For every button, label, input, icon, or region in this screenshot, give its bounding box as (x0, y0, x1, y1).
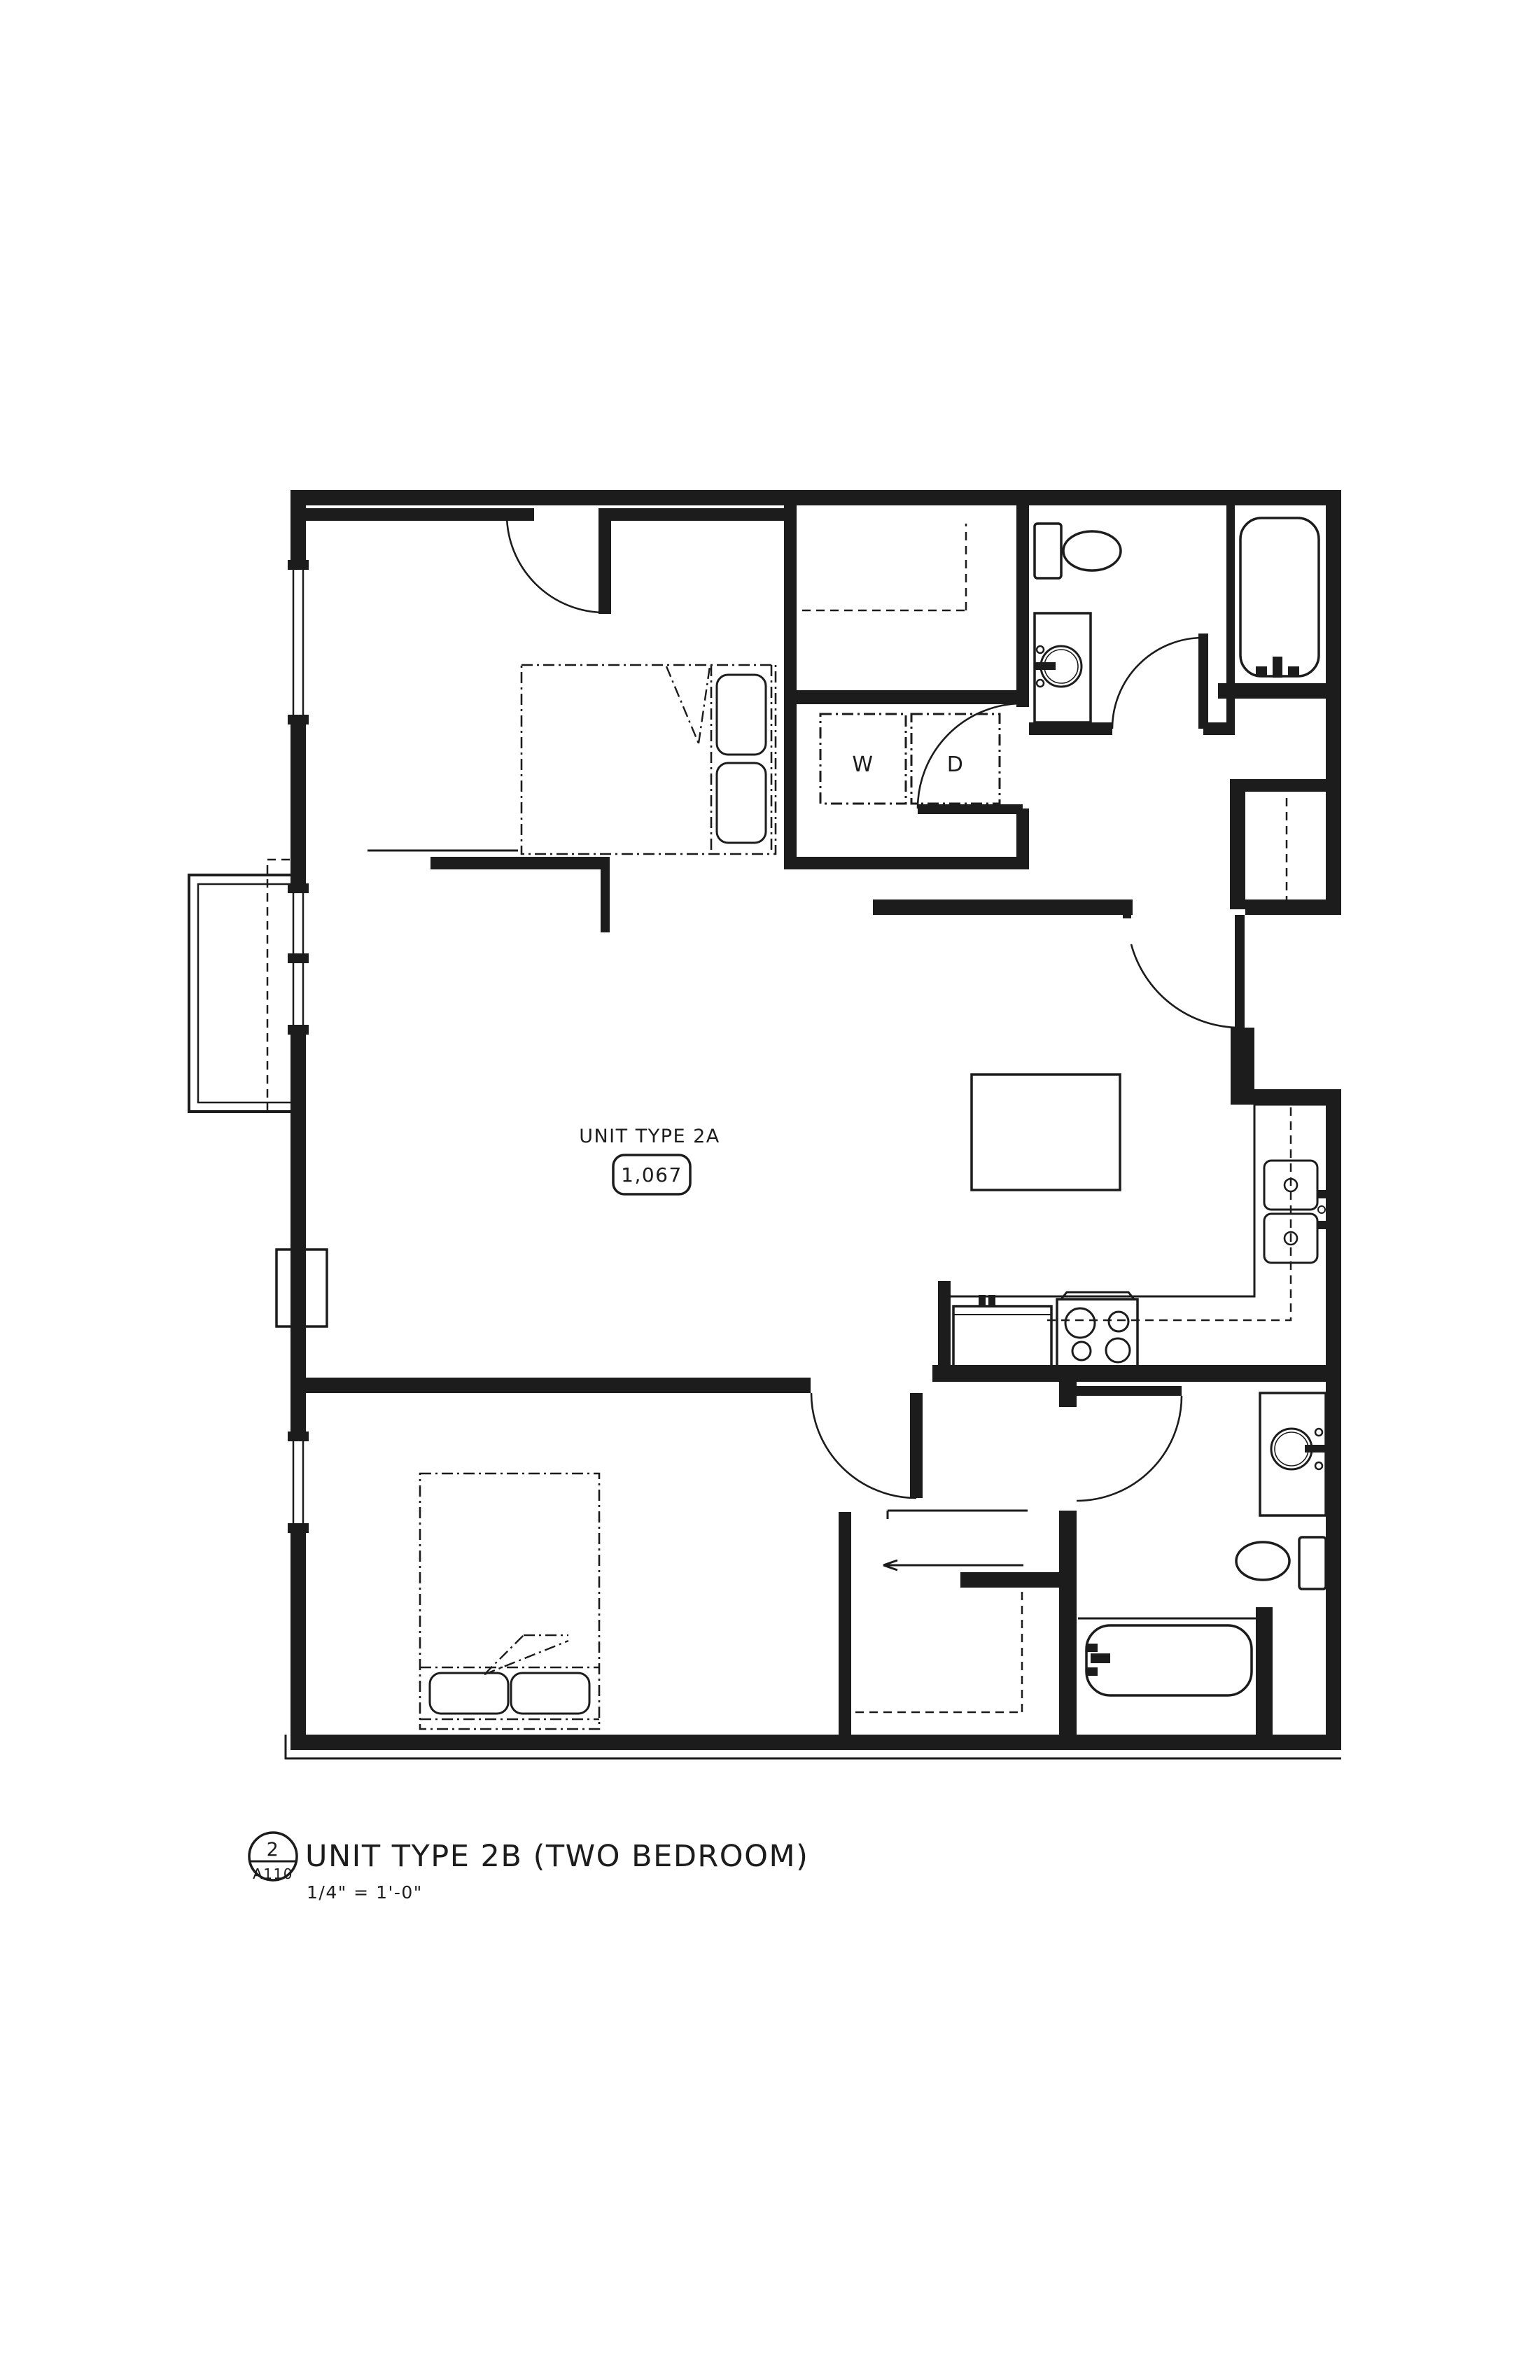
title-block: 2 A110 UNIT TYPE 2B (TWO BEDROOM) 1/4" =… (249, 1833, 808, 1903)
tub-spout (1273, 657, 1282, 678)
bedroom1-door (507, 508, 611, 614)
interior-walls (306, 503, 1341, 1742)
faucet (1035, 662, 1056, 670)
kitchen-island (972, 1074, 1120, 1190)
unit-entry-door (1131, 915, 1245, 1028)
sheet-number: A110 (253, 1865, 293, 1882)
pillow (430, 1673, 508, 1714)
washer-label: W (852, 752, 874, 777)
kitchen-sink (1264, 1161, 1326, 1263)
faucet (1305, 1445, 1326, 1452)
floor-plan-drawing: W D (0, 0, 1540, 2380)
laundry-closet: W D (820, 714, 1000, 804)
fridge-handle (979, 1295, 986, 1306)
unit-area-value: 1,067 (621, 1163, 682, 1186)
burner (1065, 1308, 1095, 1338)
drawing-scale: 1/4" = 1'-0" (307, 1882, 423, 1903)
blanket-fold (666, 666, 710, 743)
vanity-sink (1260, 1393, 1326, 1515)
bathtub (1078, 1618, 1256, 1695)
burner (1072, 1342, 1091, 1360)
doors (507, 508, 1245, 1570)
bedroom1-window (288, 560, 309, 724)
burner (1109, 1312, 1128, 1331)
bathtub (1240, 518, 1319, 678)
counter-edge (951, 1105, 1254, 1296)
refrigerator (953, 1295, 1051, 1372)
pillow (717, 675, 766, 755)
fridge-handle (988, 1295, 995, 1306)
living-room-windows (288, 883, 309, 1035)
exterior-walls (286, 490, 1341, 1758)
unit-label-group: UNIT TYPE 2A 1,067 (579, 1126, 720, 1194)
pillow (717, 763, 766, 843)
dryer-label: D (947, 752, 965, 777)
drawing-title: UNIT TYPE 2B (TWO BEDROOM) (305, 1839, 808, 1874)
bedroom2-window (288, 1431, 309, 1533)
bedroom2-bed (420, 1473, 599, 1729)
bathroom2-fixtures (1078, 1393, 1326, 1695)
tub-valve (1086, 1644, 1098, 1652)
tub-valve (1086, 1667, 1098, 1676)
toilet (1236, 1537, 1326, 1589)
stove (1057, 1292, 1137, 1366)
tub-spout (1091, 1653, 1110, 1663)
balcony (189, 860, 297, 1112)
drawing-sheet: { "document": { "kind": "architectural-f… (0, 0, 1540, 2380)
laundry-door (918, 703, 1023, 814)
bathroom2-door (1077, 1386, 1182, 1501)
blanket-fold (484, 1635, 568, 1674)
vanity-sink (1035, 613, 1091, 722)
bedroom2-door (811, 1393, 923, 1498)
toilet (1035, 524, 1121, 578)
bathroom1-door (1112, 633, 1208, 729)
walk-in-closet-shelf (802, 524, 966, 610)
pillow (511, 1673, 589, 1714)
sink-faucet (1317, 1190, 1326, 1198)
unit-type-label: UNIT TYPE 2A (579, 1126, 720, 1147)
detail-number: 2 (267, 1839, 280, 1861)
bedroom1-bed (521, 665, 776, 854)
hall-closet-shelf (855, 1589, 1022, 1712)
kitchen (951, 1074, 1326, 1372)
burner (1106, 1338, 1130, 1362)
hall-closet-sliding-doors (883, 1511, 1028, 1570)
